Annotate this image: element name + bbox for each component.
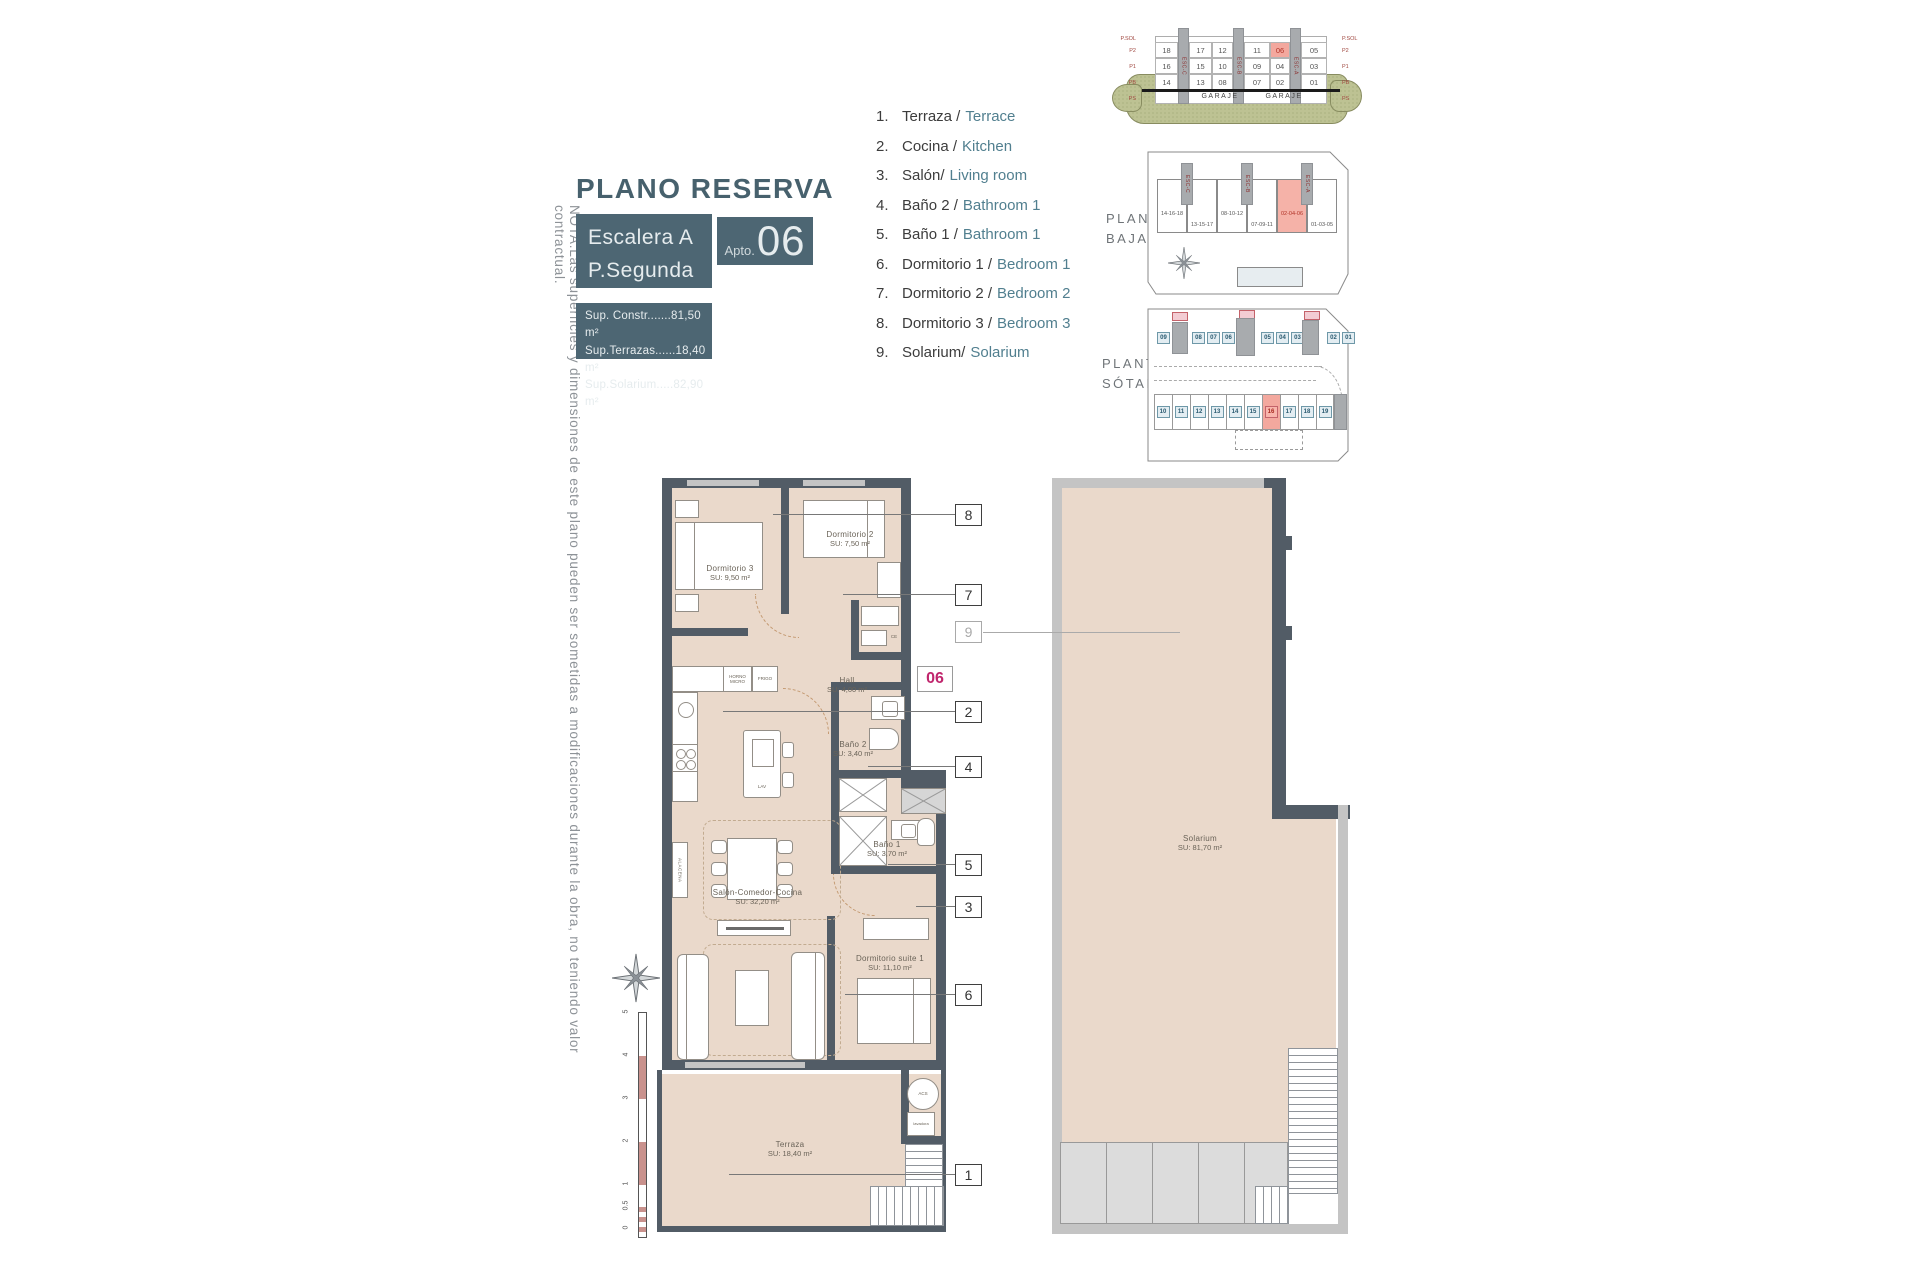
legend-english: Solarium: [970, 344, 1029, 361]
compass-rose-icon: [1168, 243, 1200, 283]
legend-item: 2. Cocina / Kitchen: [876, 138, 1070, 155]
fridge: FRIGO: [752, 666, 778, 692]
wall-stub: [1286, 626, 1292, 640]
unit-cell: 10: [1212, 58, 1233, 74]
pool-shape: [1237, 267, 1303, 287]
esc-marker-chip: [1304, 311, 1320, 320]
unit-cell: 16: [1155, 58, 1178, 74]
scale-tick-4: 4: [622, 1053, 629, 1057]
solarium-wall-top: [1052, 478, 1274, 488]
wall-bano1-bottom: [831, 866, 946, 874]
storage-number: 02: [1327, 332, 1340, 344]
legend-english: Bedroom 1: [997, 256, 1070, 273]
terrace-wall-bottom: [657, 1226, 946, 1232]
legend-spanish: Cocina /: [902, 138, 957, 155]
legend-number: 6.: [876, 256, 902, 273]
terrace-wall-left: [657, 1070, 662, 1232]
callout-7: 7: [955, 584, 982, 606]
stair-floor-box: Escalera A P.Segunda: [576, 214, 712, 288]
unit-cell: 02: [1270, 74, 1290, 90]
wall-closet-left: [851, 600, 859, 660]
surface-line: Sup.Solarium.....82,90 m²: [585, 377, 703, 412]
floor-label-p2-right: P2: [1342, 48, 1364, 54]
floor-label-ps-left: PS: [1114, 96, 1136, 102]
hob-burner: [676, 760, 686, 770]
legend-item: 6. Dormitorio 1 / Bedroom 1: [876, 256, 1070, 273]
pergola-strip: [1060, 1142, 1288, 1224]
pantry: ALACENA: [672, 842, 688, 898]
page-title: PLANO RESERVA: [576, 173, 834, 205]
callout-8: 8: [955, 504, 982, 526]
stair-core-a: ESC-A: [1301, 163, 1313, 205]
legend-number: 7.: [876, 285, 902, 302]
parking-number: 17: [1283, 406, 1296, 418]
pool-dashed-outline: [1235, 430, 1303, 450]
legend-spanish: Dormitorio 3 /: [902, 315, 992, 332]
stairs-solarium-lower: [1255, 1186, 1289, 1224]
surface-line: Sup. Constr.......81,50 m²: [585, 308, 703, 343]
unit-cell: 09: [1244, 58, 1270, 74]
storage-number: 07: [1207, 332, 1220, 344]
legend-spanish: Terraza /: [902, 108, 960, 125]
scale-tick-3: 3: [622, 1096, 629, 1100]
storage-number: 06: [1222, 332, 1235, 344]
wall-left: [662, 478, 672, 1070]
storage-number: 08: [1192, 332, 1205, 344]
unit-cell: 07: [1244, 74, 1270, 90]
unit-cell: 14: [1155, 74, 1178, 90]
scale-tick-1: 1: [622, 1182, 629, 1186]
hot-water-tank: ACS: [907, 1078, 939, 1110]
stairs-terrace-lower: [870, 1186, 944, 1226]
wall-right-lower: [936, 778, 946, 1070]
apto-number: 06: [757, 217, 806, 265]
floor-plan-sheet: NOTA:Las superficies y dimensiones de es…: [0, 0, 1920, 1280]
wall-bano2-bottom: [831, 770, 946, 778]
callout-9: 9: [955, 621, 982, 643]
legend-english: Terrace: [965, 108, 1015, 125]
room-label-solarium: SolariumSU: 81,70 m²: [1140, 834, 1260, 852]
apto-label: Apto.: [724, 243, 754, 265]
stair-block: [1334, 394, 1347, 430]
unit-cell: 15: [1189, 58, 1212, 74]
scale-tick-0: 0: [622, 1226, 629, 1230]
hall-closet-shelf: [861, 630, 887, 646]
surface-areas-box: Sup. Constr.......81,50 m²Sup.Terrazas..…: [576, 303, 712, 359]
scale-bar: [638, 1012, 647, 1238]
wall-bano2-left: [831, 682, 839, 778]
legend-item: 1. Terraza / Terrace: [876, 108, 1070, 125]
scale-tick-5: 5: [622, 1010, 629, 1014]
parking-row: 10111213141516171819: [1154, 406, 1334, 418]
scale-tick-2: 2: [622, 1139, 629, 1143]
kitchen-island: LAV: [743, 730, 781, 798]
stair-core-b: [1236, 318, 1255, 356]
callout-5: 5: [955, 854, 982, 876]
leader-line-4: [868, 766, 955, 767]
storage-number: 05: [1261, 332, 1274, 344]
legend-spanish: Dormitorio 2 /: [902, 285, 992, 302]
unit-marker-06: 06: [917, 666, 953, 692]
legend-number: 8.: [876, 315, 902, 332]
bed-suite: [857, 978, 931, 1044]
legend-english: Bedroom 3: [997, 315, 1070, 332]
unit-cell: 17: [1189, 42, 1212, 58]
leader-line-8: [773, 514, 955, 515]
solarium-floor: [1060, 486, 1274, 1142]
legend-english: Kitchen: [962, 138, 1012, 155]
room-label-terraza: TerrazaSU: 18,40 m²: [745, 1140, 835, 1158]
legend-number: 9.: [876, 344, 902, 361]
floor-label-pb-right: PB: [1342, 80, 1364, 86]
leader-line-9: [983, 632, 1180, 633]
unit-cell: 11: [1244, 42, 1270, 58]
stair-core-a: [1302, 320, 1319, 355]
building-section-diagram: 181712110605 161510090403 141308070201 G…: [1102, 12, 1370, 132]
solarium-wall-left: [1052, 478, 1062, 1234]
unit-cell: 05: [1301, 42, 1327, 58]
parking-number: 11: [1175, 406, 1188, 418]
wardrobe-suite: [863, 918, 929, 940]
wardrobe-dorm2: [877, 562, 901, 598]
scale-tick-05: 0.5: [622, 1201, 629, 1211]
washing-machine: lavadora: [907, 1112, 935, 1136]
unit-cell: 06: [1270, 42, 1290, 58]
solarium-plan: SolariumSU: 81,70 m²: [1050, 476, 1370, 1246]
chair: [777, 840, 793, 854]
coffee-table: [735, 970, 769, 1026]
apartment-floor-plan: CE HORNO MICRO FRIGO LAV ALACENA: [655, 476, 955, 1240]
floor-label-p1-right: P1: [1342, 64, 1364, 70]
sink-bano2: [871, 696, 905, 720]
parking-number: 18: [1301, 406, 1314, 418]
legend-english: Bathroom 1: [963, 197, 1041, 214]
unit-cell: 04: [1270, 58, 1290, 74]
tv: [726, 927, 784, 930]
callout-2: 2: [955, 701, 982, 723]
legend-item: 4. Baño 2 / Bathroom 1: [876, 197, 1070, 214]
legend-item: 3. Salón/ Living room: [876, 167, 1070, 184]
shower-bano2: [901, 788, 946, 814]
floor-label-pb-left: PB: [1114, 80, 1136, 86]
window-dorm3: [687, 480, 759, 486]
ce-label: CE: [887, 634, 901, 639]
parking-number: 16: [1265, 406, 1278, 418]
hob-burner: [676, 749, 686, 759]
planta-baja-diagram: PLANTABAJA 14-16-1813-15-1708-10-1207-09…: [1102, 147, 1370, 299]
legend-spanish: Salón/: [902, 167, 945, 184]
room-label-bano2: Baño 2SU: 3,40 m²: [823, 740, 883, 758]
wall-dorm3-bottom: [672, 628, 748, 636]
escalera-label: Escalera A: [588, 222, 700, 255]
oven-microwave: HORNO MICRO: [723, 666, 752, 692]
callout-3: 3: [955, 896, 982, 918]
storage-number: 09: [1157, 332, 1170, 344]
callout-4: 4: [955, 756, 982, 778]
stair-core-b: ESC-B: [1241, 163, 1253, 205]
nightstand: [675, 594, 699, 612]
leader-line-5: [888, 864, 955, 865]
stool: [782, 772, 794, 788]
legend-english: Living room: [950, 167, 1028, 184]
chair: [711, 862, 727, 876]
nightstand: [675, 500, 699, 518]
drive-lane-line: [1154, 366, 1322, 367]
unit-cell: 18: [1155, 42, 1178, 58]
solarium-wall-right-lower: [1338, 805, 1348, 1234]
apartment-number-box: Apto. 06: [717, 217, 813, 265]
floor-label-psol-right: P.SOL: [1342, 36, 1364, 42]
parking-number: 12: [1193, 406, 1206, 418]
legend-english: Bathroom 1: [963, 226, 1041, 243]
garaje-label-right: GARAJE: [1254, 93, 1314, 100]
parking-number: 19: [1319, 406, 1332, 418]
chair: [711, 840, 727, 854]
legend-spanish: Baño 2 /: [902, 197, 958, 214]
parking-number: 10: [1157, 406, 1170, 418]
parking-number: 14: [1229, 406, 1242, 418]
leader-line-7: [843, 594, 955, 595]
leader-line-3: [916, 906, 955, 907]
unit-cell: 08: [1212, 74, 1233, 90]
legend-item: 9. Solarium/ Solarium: [876, 344, 1070, 361]
legend-item: 7. Dormitorio 2 / Bedroom 2: [876, 285, 1070, 302]
unit-cell: 01: [1301, 74, 1327, 90]
planta-label: P.Segunda: [588, 255, 700, 288]
room-label-suite: Dormitorio suite 1SU: 11,10 m²: [845, 954, 935, 972]
window-salon-terrace: [685, 1062, 805, 1068]
room-label-bano1: Baño 1SU: 3,70 m²: [855, 840, 919, 858]
legend-spanish: Baño 1 /: [902, 226, 958, 243]
room-legend: 1. Terraza / Terrace 2. Cocina / Kitchen…: [876, 108, 1070, 361]
unit-cell: 13: [1189, 74, 1212, 90]
garaje-label-left: GARAJE: [1190, 93, 1250, 100]
legend-item: 5. Baño 1 / Bathroom 1: [876, 226, 1070, 243]
utility-nook-wall-bottom: [901, 1136, 946, 1144]
compass-rose-icon: [612, 952, 660, 1004]
chair: [777, 862, 793, 876]
leader-line-2: [723, 711, 955, 712]
planta-sotano-diagram: PLANTASÓTANO 090807060504030201 10111213…: [1102, 306, 1370, 464]
stair-core-c: ESC-C: [1181, 163, 1193, 205]
legend-number: 3.: [876, 167, 902, 184]
wall-stub: [1286, 536, 1292, 550]
hob-burner: [686, 760, 696, 770]
stair-core-c: ESC-C: [1178, 28, 1189, 104]
leader-line-6: [845, 994, 955, 995]
legend-english: Bedroom 2: [997, 285, 1070, 302]
hob: [672, 744, 698, 772]
floor-label-p1-left: P1: [1114, 64, 1136, 70]
legend-number: 2.: [876, 138, 902, 155]
sofa-left: [677, 954, 709, 1060]
room-label-dormitorio2: Dormitorio 2SU: 7,50 m²: [810, 530, 890, 548]
callout-6: 6: [955, 984, 982, 1006]
surface-line: Sup.Terrazas......18,40 m²: [585, 343, 703, 378]
parking-number: 15: [1247, 406, 1260, 418]
room-label-dormitorio3: Dormitorio 3SU: 9,50 m²: [690, 564, 770, 582]
legend-spanish: Solarium/: [902, 344, 965, 361]
kitchen-sink: [678, 702, 694, 718]
floor-label-p2-left: P2: [1114, 48, 1136, 54]
stool: [782, 742, 794, 758]
legend-number: 1.: [876, 108, 902, 125]
bed-dorm2: [803, 500, 885, 558]
legend-spanish: Dormitorio 1 /: [902, 256, 992, 273]
solarium-wall-right-upper: [1272, 482, 1286, 812]
solarium-wall-bottom: [1052, 1224, 1348, 1234]
storage-number: 01: [1342, 332, 1355, 344]
ground-level-line: [1142, 89, 1340, 92]
unit-cell: 03: [1301, 58, 1327, 74]
room-label-salon: Salón-Comedor-CocinaSU: 32,20 m²: [695, 888, 820, 906]
toilet-bano1: [917, 818, 935, 846]
unit-cell: 12: [1212, 42, 1233, 58]
drive-lane-line: [1154, 380, 1316, 381]
storage-number: 04: [1276, 332, 1289, 344]
legend-number: 4.: [876, 197, 902, 214]
room-label-hall: HallSU: 4,00 m²: [817, 676, 877, 694]
floor-label-psol-left: P.SOL: [1114, 36, 1136, 42]
wall-closet-bottom: [851, 652, 901, 660]
parking-number: 13: [1211, 406, 1224, 418]
callout-1: 1: [955, 1164, 982, 1186]
legend-number: 5.: [876, 226, 902, 243]
window-dorm2: [803, 480, 865, 486]
wall-right-upper: [901, 478, 911, 788]
sofa-right: [791, 952, 825, 1060]
dishwasher-label: LAV: [744, 784, 780, 789]
stairs-solarium: [1288, 1048, 1338, 1194]
leader-line-1: [729, 1174, 955, 1175]
tv-sideboard: [717, 920, 791, 936]
legend-item: 8. Dormitorio 3 / Bedroom 3: [876, 315, 1070, 332]
esc-marker-chip: [1172, 312, 1188, 321]
island-sink: [752, 739, 774, 767]
hall-closet-shelf: [861, 606, 899, 626]
hob-burner: [686, 749, 696, 759]
laundry-closet: [839, 778, 887, 812]
floor-label-ps-right: PS: [1342, 96, 1364, 102]
stair-core-c: [1172, 322, 1188, 354]
